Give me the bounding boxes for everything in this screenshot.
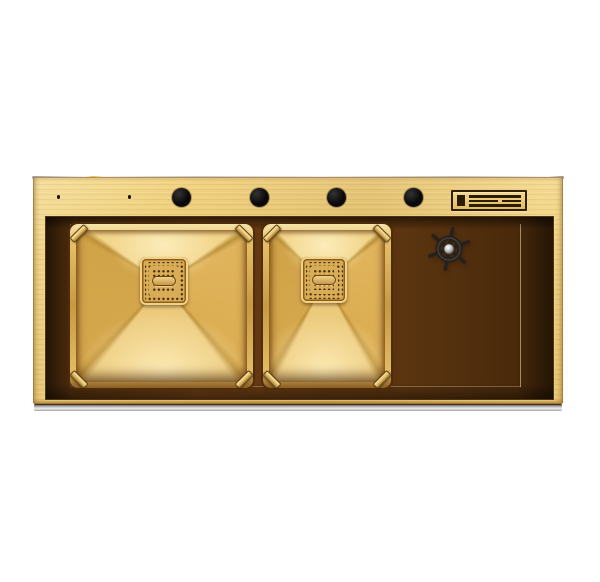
right-basin [263, 224, 391, 388]
drain-grate [140, 257, 188, 305]
basin-recess [46, 217, 553, 399]
pilot-hole [128, 195, 132, 199]
brand-plate-line [469, 195, 521, 198]
brand-plate-bar [457, 195, 465, 206]
drain-handle [312, 275, 336, 285]
wheel-hub [444, 244, 454, 254]
product-photo-stage [0, 0, 600, 582]
brand-plate [451, 190, 527, 211]
faucet-hole [404, 188, 423, 207]
faucet-hole [172, 188, 191, 207]
faucet-hole [327, 188, 346, 207]
left-basin-interior [76, 230, 247, 382]
brand-plate-line [469, 204, 521, 207]
drain-grate [301, 257, 347, 303]
brand-plate-line [469, 200, 498, 203]
drain-handle [152, 276, 176, 286]
brand-plate-line [502, 200, 521, 203]
pilot-hole [57, 195, 61, 199]
ship-wheel-icon [426, 226, 472, 272]
right-basin-interior [269, 230, 385, 382]
sink-body [33, 177, 563, 404]
sink-front-edge-strip [34, 404, 562, 411]
faucet-hole [250, 188, 269, 207]
left-basin [70, 224, 253, 388]
